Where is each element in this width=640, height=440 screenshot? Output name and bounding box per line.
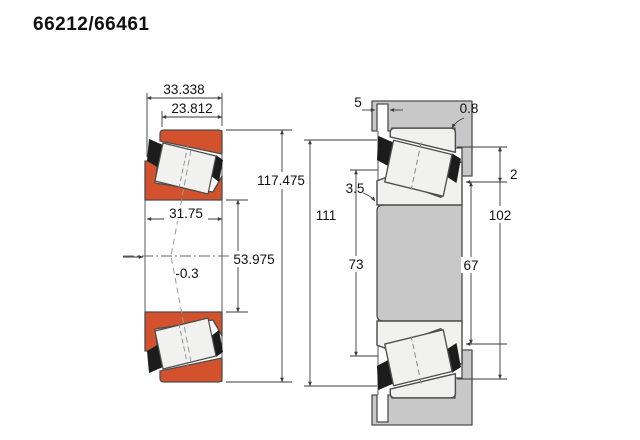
mounting-view: 5 0.8 3.5 111 73 [304, 95, 519, 425]
lower-mounted-bearing [377, 321, 462, 398]
dim-backface-clearance: 2 [510, 167, 518, 182]
dim-shaft-abutment-diameter: 67 [463, 258, 478, 273]
upper-mounted-bearing [377, 128, 462, 205]
dim-cone-width: 31.75 [169, 206, 203, 221]
dim-shaft-fillet: 3.5 [346, 181, 365, 196]
dim-housing-fillet: 0.8 [460, 101, 479, 116]
dim-housing-abutment-diameter: 102 [489, 208, 512, 223]
dim-face-offset: 5 [354, 95, 362, 110]
bearing-section-view: 33.338 23.812 117.475 31.75 53.975 -0.3 [123, 82, 311, 382]
dim-outer-diameter: 117.475 [257, 173, 305, 188]
technical-drawing-page: 66212/66461 [0, 0, 640, 440]
bearing-drawing: 33.338 23.812 117.475 31.75 53.975 -0.3 [0, 0, 640, 440]
dim-bore-diameter: 53.975 [233, 252, 274, 267]
dim-overall-width: 33.338 [163, 82, 204, 97]
dim-shaft-shoulder-diameter: 73 [348, 257, 363, 272]
dim-cup-width: 23.812 [171, 101, 212, 116]
dim-housing-shoulder-diameter: 111 [316, 208, 337, 223]
shaft-block [377, 205, 462, 321]
dim-load-center-offset: -0.3 [175, 266, 198, 281]
